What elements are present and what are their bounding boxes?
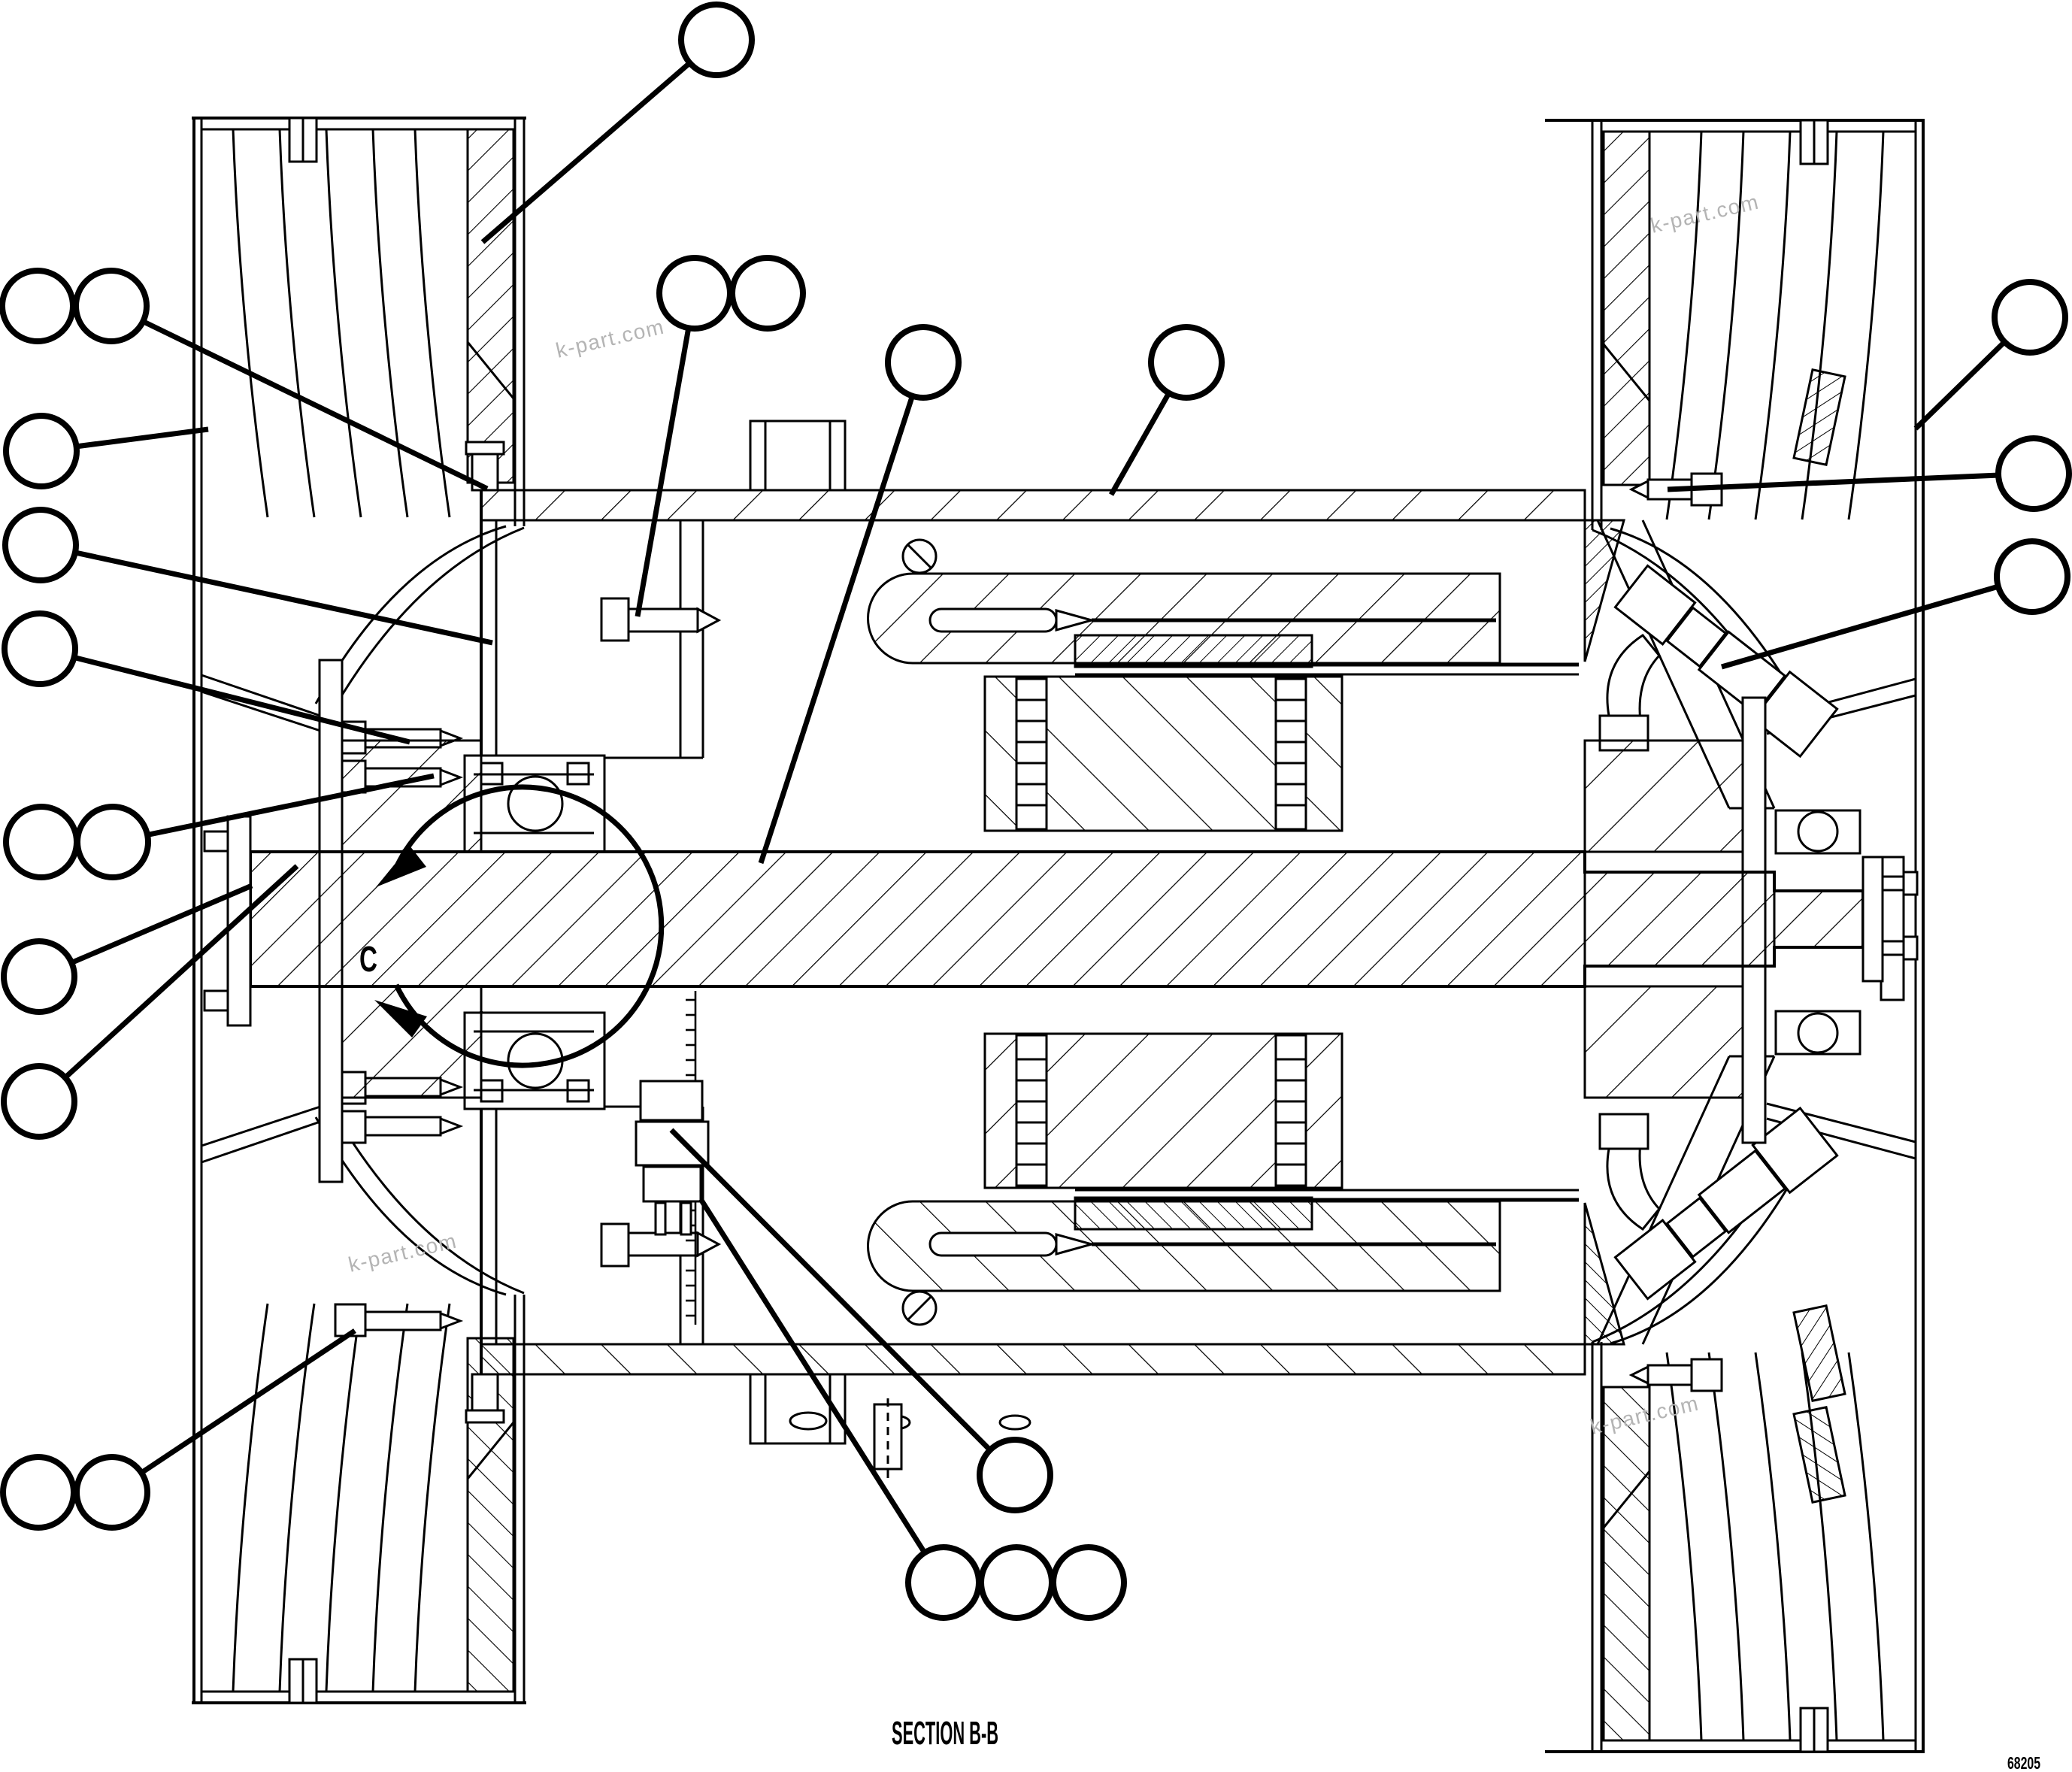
callout-balloon[interactable] xyxy=(77,807,148,877)
callout-balloon[interactable] xyxy=(1998,438,2069,509)
callout-balloon[interactable] xyxy=(76,271,147,341)
callout-balloon[interactable] xyxy=(5,613,75,684)
callout-balloon[interactable] xyxy=(1997,541,2067,612)
callout-balloon[interactable] xyxy=(659,258,730,329)
callout-balloon[interactable] xyxy=(681,5,752,75)
callout-balloon[interactable] xyxy=(732,258,803,329)
detail-label-c: C xyxy=(359,940,377,980)
callout-balloon[interactable] xyxy=(6,416,77,486)
callout-balloon[interactable] xyxy=(888,327,959,398)
callout-balloon[interactable] xyxy=(1053,1547,1124,1618)
callout-balloon[interactable] xyxy=(77,1457,147,1528)
drawing-page: k-part.comk-part.comk-part.comk-part.com… xyxy=(0,0,2072,1772)
callout-balloon[interactable] xyxy=(6,807,77,877)
callout-balloon[interactable] xyxy=(5,510,76,580)
callout-balloon[interactable] xyxy=(2,271,73,341)
callout-balloon[interactable] xyxy=(1151,327,1222,398)
drawing-number: 68205 xyxy=(2007,1753,2040,1772)
section-title: SECTION B-B xyxy=(892,1715,998,1752)
callout-balloon[interactable] xyxy=(4,941,74,1012)
callout-balloon[interactable] xyxy=(981,1547,1052,1618)
callout-balloon[interactable] xyxy=(3,1457,74,1528)
section-bb-diagram: k-part.comk-part.comk-part.comk-part.com… xyxy=(0,0,2072,1772)
callout-balloon[interactable] xyxy=(1995,282,2065,353)
callout-balloon[interactable] xyxy=(908,1547,979,1618)
callout-balloon[interactable] xyxy=(980,1440,1050,1510)
callout-balloon[interactable] xyxy=(4,1066,74,1137)
